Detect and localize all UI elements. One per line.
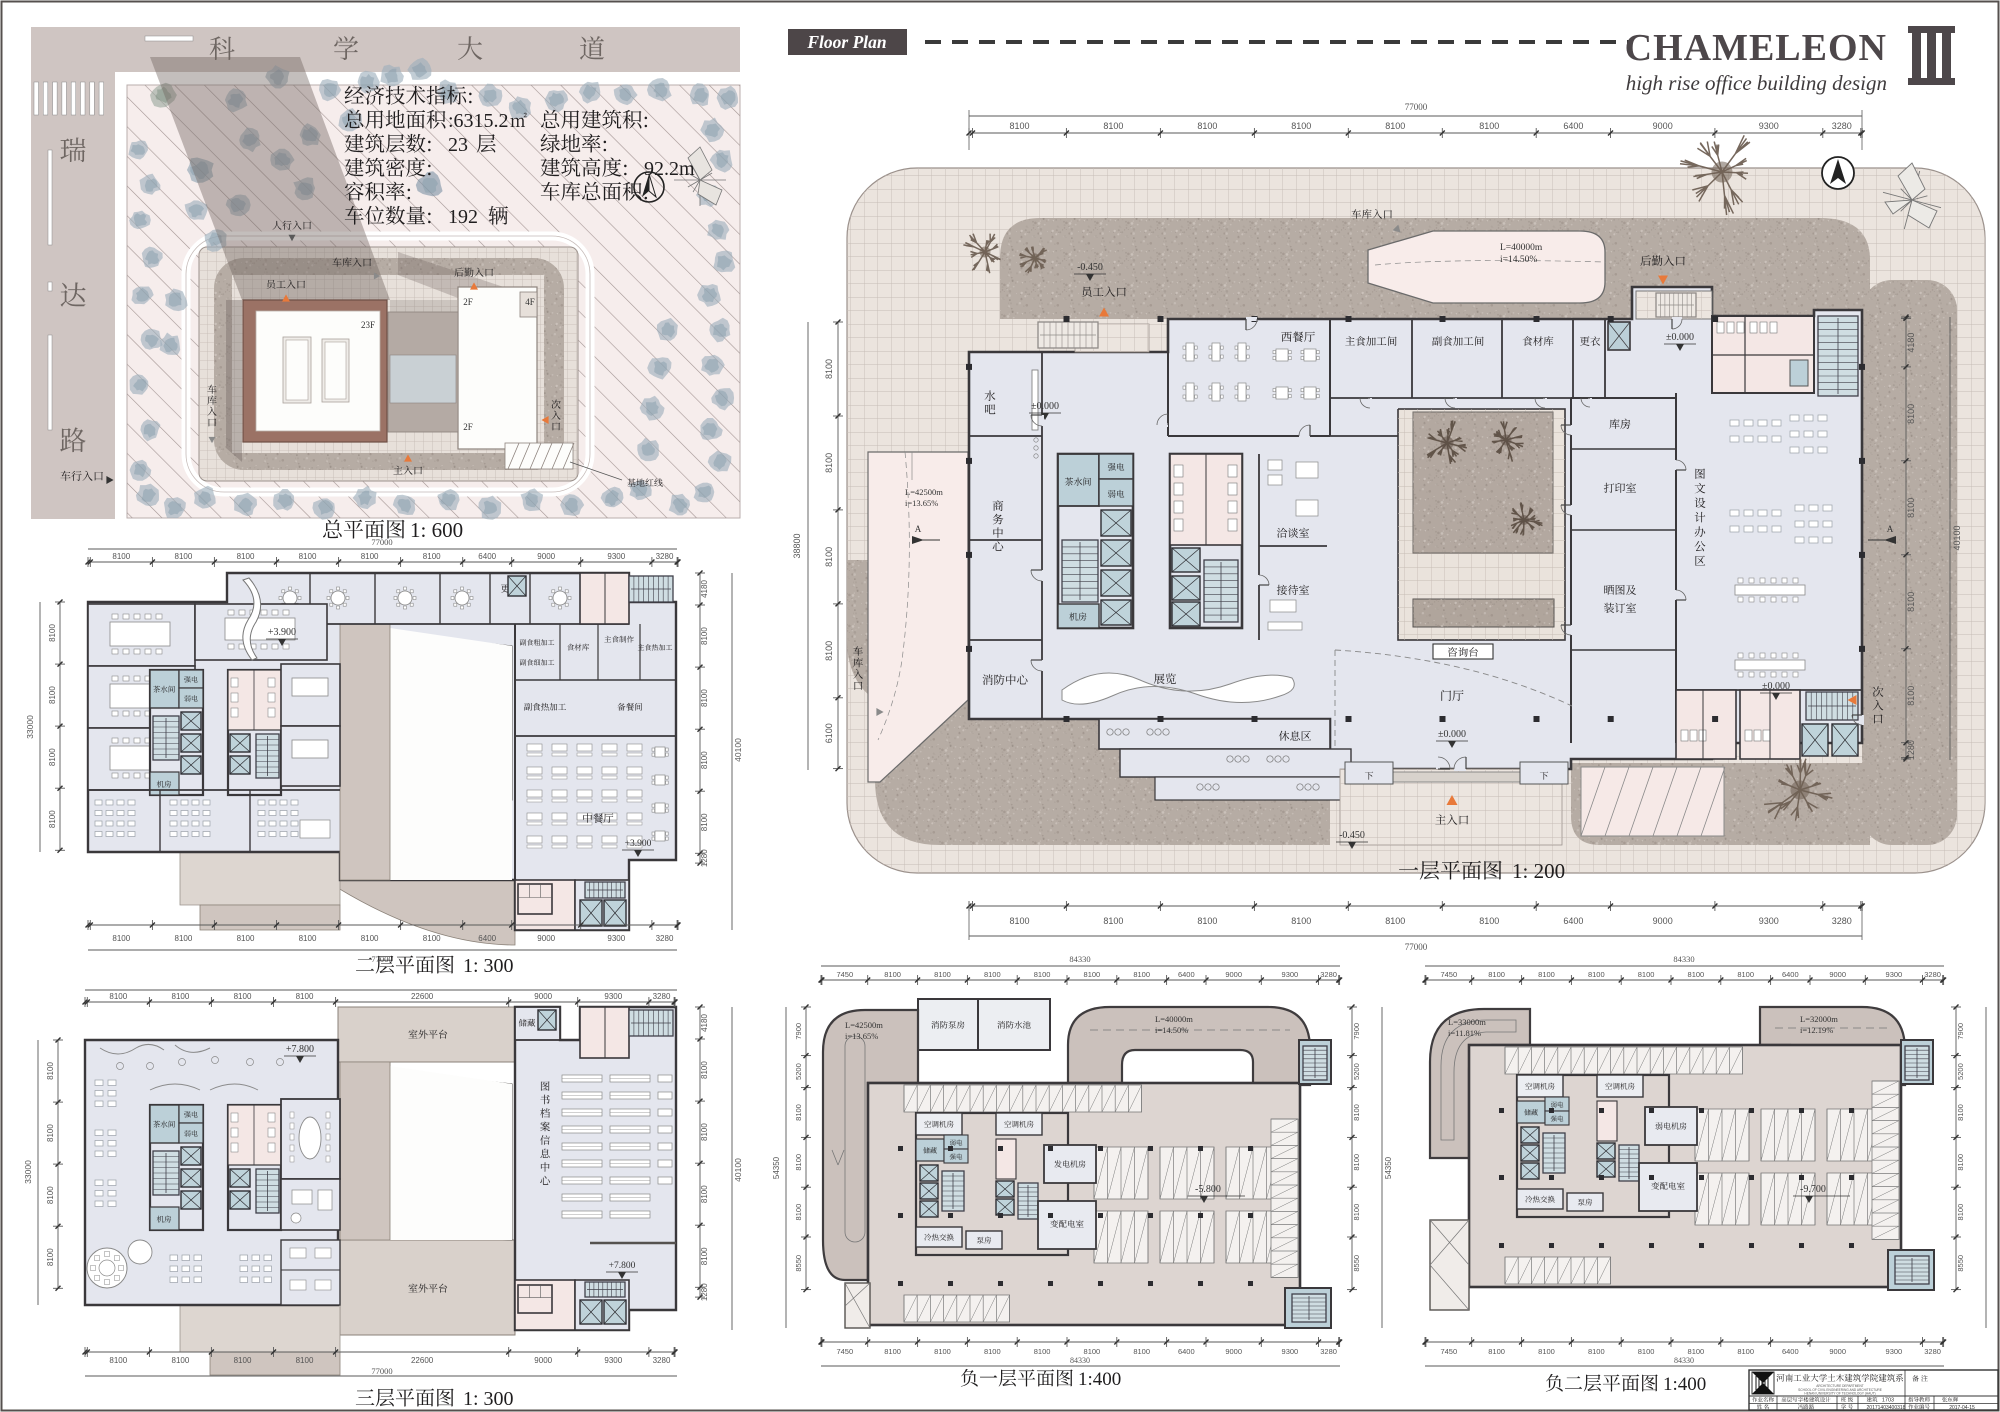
svg-text:8550: 8550	[1956, 1255, 1965, 1272]
svg-text:3280: 3280	[1832, 916, 1852, 926]
svg-text:9300: 9300	[1282, 970, 1299, 979]
svg-text:6400: 6400	[1563, 121, 1583, 131]
svg-text:8100: 8100	[46, 1186, 55, 1204]
svg-text:8100: 8100	[1688, 1347, 1705, 1356]
svg-text:8100: 8100	[984, 970, 1001, 979]
svg-text:8550: 8550	[794, 1255, 803, 1272]
svg-text:8100: 8100	[1956, 1104, 1965, 1121]
svg-text:2F: 2F	[463, 422, 473, 432]
svg-text:1703: 1703	[1882, 1398, 1894, 1404]
svg-text:8100: 8100	[1479, 916, 1499, 926]
svg-text:22600: 22600	[411, 992, 434, 1001]
svg-text:8100: 8100	[824, 359, 834, 379]
svg-text:8100: 8100	[172, 992, 190, 1001]
svg-text:8100: 8100	[700, 1185, 709, 1203]
svg-text:3280: 3280	[1832, 121, 1852, 131]
svg-text:3280: 3280	[1924, 1347, 1941, 1356]
svg-text:6400: 6400	[1178, 970, 1195, 979]
svg-text:8100: 8100	[175, 934, 193, 943]
svg-text:9000: 9000	[1653, 121, 1673, 131]
svg-text:84330: 84330	[1070, 1356, 1090, 1365]
svg-text:8100: 8100	[1588, 1347, 1605, 1356]
svg-text:8100: 8100	[824, 547, 834, 567]
svg-text:8100: 8100	[1956, 1154, 1965, 1171]
svg-text:192: 192	[448, 206, 478, 228]
svg-text:8100: 8100	[1906, 686, 1916, 706]
svg-text:8100: 8100	[175, 552, 193, 561]
svg-text:8100: 8100	[1291, 916, 1311, 926]
svg-text:7900: 7900	[1352, 1023, 1361, 1040]
svg-text:9300: 9300	[1886, 970, 1903, 979]
svg-text:20171403400318: 20171403400318	[1867, 1405, 1906, 1411]
svg-text:i=12.19%: i=12.19%	[1800, 1025, 1833, 1035]
svg-text:8100: 8100	[361, 552, 379, 561]
svg-text:33000: 33000	[25, 715, 35, 739]
svg-text:8100: 8100	[884, 970, 901, 979]
svg-text:7450: 7450	[1440, 1347, 1457, 1356]
svg-text:8100: 8100	[794, 1204, 803, 1221]
svg-text:8100: 8100	[1538, 1347, 1555, 1356]
svg-text:8100: 8100	[237, 552, 255, 561]
svg-text:8100: 8100	[1956, 1204, 1965, 1221]
svg-text:40100: 40100	[733, 738, 743, 762]
svg-text:±0.000: ±0.000	[1666, 332, 1694, 343]
svg-text:2F: 2F	[463, 297, 473, 307]
svg-text:9300: 9300	[604, 1356, 622, 1365]
svg-text:8100: 8100	[1638, 970, 1655, 979]
svg-text:i=14.50%: i=14.50%	[1155, 1025, 1188, 1035]
svg-text:8100: 8100	[824, 453, 834, 473]
svg-text:1280: 1280	[1906, 740, 1916, 760]
svg-text:8100: 8100	[794, 1154, 803, 1171]
svg-text:23: 23	[448, 134, 468, 156]
svg-text:-0.450: -0.450	[1339, 830, 1365, 841]
svg-text:9000: 9000	[1225, 970, 1242, 979]
svg-text:6400: 6400	[1178, 1347, 1195, 1356]
svg-text:8100: 8100	[48, 624, 57, 642]
svg-text:8100: 8100	[1688, 970, 1705, 979]
svg-text:±0.000: ±0.000	[1762, 681, 1790, 692]
svg-text:8100: 8100	[1352, 1204, 1361, 1221]
svg-text:40100: 40100	[733, 1158, 743, 1182]
svg-text:L=42500m: L=42500m	[905, 487, 943, 497]
svg-text:A: A	[1887, 524, 1894, 534]
svg-text:8100: 8100	[299, 934, 317, 943]
svg-text:8100: 8100	[1034, 970, 1051, 979]
svg-text:9000: 9000	[534, 992, 552, 1001]
svg-text:8100: 8100	[1084, 970, 1101, 979]
svg-text:22600: 22600	[411, 1356, 434, 1365]
svg-text:6400: 6400	[1563, 916, 1583, 926]
svg-text:-0.450: -0.450	[1077, 262, 1103, 273]
svg-text:8100: 8100	[1479, 121, 1499, 131]
svg-text:9000: 9000	[537, 934, 555, 943]
svg-text:77000: 77000	[371, 1366, 392, 1376]
svg-text:8100: 8100	[234, 1356, 252, 1365]
svg-text:8100: 8100	[1638, 1347, 1655, 1356]
svg-text:8100: 8100	[794, 1104, 803, 1121]
svg-text:L=33000m: L=33000m	[1448, 1017, 1486, 1027]
svg-text:9300: 9300	[1886, 1347, 1903, 1356]
svg-text:i=13.65%: i=13.65%	[905, 498, 938, 508]
svg-text:i=14.50%: i=14.50%	[1500, 255, 1537, 265]
svg-text:9300: 9300	[604, 992, 622, 1001]
svg-text:8100: 8100	[1385, 121, 1405, 131]
svg-text:77000: 77000	[1405, 942, 1428, 952]
svg-text:6400: 6400	[1782, 970, 1799, 979]
svg-text:i=11.81%: i=11.81%	[1448, 1028, 1481, 1038]
svg-text:33000: 33000	[23, 1160, 33, 1184]
svg-text:1: 300: 1: 300	[463, 1388, 514, 1410]
svg-text:3280: 3280	[656, 552, 674, 561]
svg-text:84330: 84330	[1069, 954, 1090, 964]
svg-text:7900: 7900	[794, 1023, 803, 1040]
svg-text:8100: 8100	[884, 1347, 901, 1356]
svg-text:i=13.65%: i=13.65%	[845, 1031, 878, 1041]
svg-text:9300: 9300	[1759, 121, 1779, 131]
svg-text:4180: 4180	[700, 1014, 709, 1032]
svg-text:1:400: 1:400	[1078, 1369, 1121, 1390]
svg-text:8100: 8100	[700, 1123, 709, 1141]
svg-text:Floor Plan: Floor Plan	[806, 32, 886, 52]
svg-text:8100: 8100	[109, 992, 127, 1001]
svg-text:1: 600: 1: 600	[410, 518, 463, 542]
svg-text:8100: 8100	[48, 686, 57, 704]
svg-text:8100: 8100	[700, 1247, 709, 1265]
svg-text:8100: 8100	[361, 934, 379, 943]
svg-text:+3.900: +3.900	[625, 839, 652, 849]
svg-text:8100: 8100	[1084, 1347, 1101, 1356]
svg-text:8100: 8100	[296, 992, 314, 1001]
svg-text:L=40000m: L=40000m	[1500, 243, 1543, 253]
svg-text:3280: 3280	[656, 934, 674, 943]
svg-text:3280: 3280	[653, 992, 671, 1001]
svg-text:8100: 8100	[1034, 1347, 1051, 1356]
svg-text:8100: 8100	[1906, 592, 1916, 612]
svg-text:8100: 8100	[1352, 1104, 1361, 1121]
svg-text:L=40000m: L=40000m	[1155, 1014, 1193, 1024]
svg-text:6100: 6100	[824, 723, 834, 743]
svg-text:8100: 8100	[934, 1347, 951, 1356]
svg-text:38800: 38800	[792, 533, 802, 558]
svg-text:1280: 1280	[700, 1283, 709, 1301]
svg-text:8100: 8100	[984, 1347, 1001, 1356]
svg-text:8550: 8550	[1352, 1255, 1361, 1272]
svg-text:8100: 8100	[700, 689, 709, 707]
svg-text:9000: 9000	[537, 552, 555, 561]
svg-text:8100: 8100	[1488, 970, 1505, 979]
svg-text:8100: 8100	[234, 992, 252, 1001]
svg-text:9000: 9000	[1225, 1347, 1242, 1356]
svg-text:CHAMELEON: CHAMELEON	[1625, 27, 1887, 69]
svg-text:4180: 4180	[700, 580, 709, 598]
svg-text:-9.700: -9.700	[1800, 1184, 1826, 1195]
svg-text:+7.800: +7.800	[286, 1044, 314, 1055]
svg-text:8100: 8100	[112, 934, 130, 943]
svg-text:8100: 8100	[700, 1061, 709, 1079]
svg-text:+7.800: +7.800	[609, 1261, 636, 1271]
svg-text:L=32000m: L=32000m	[1800, 1014, 1838, 1024]
svg-text:23F: 23F	[361, 320, 375, 330]
svg-text:9300: 9300	[607, 934, 625, 943]
svg-text:1: 200: 1: 200	[1512, 859, 1565, 883]
svg-text:8100: 8100	[1588, 970, 1605, 979]
svg-text:5200: 5200	[794, 1063, 803, 1080]
svg-text:7450: 7450	[836, 1347, 853, 1356]
svg-text:84330: 84330	[1673, 954, 1694, 964]
svg-text:high rise office building desi: high rise office building design	[1626, 71, 1887, 95]
svg-text:8100: 8100	[1009, 121, 1029, 131]
svg-text:9300: 9300	[1282, 1347, 1299, 1356]
svg-text:77000: 77000	[371, 954, 392, 964]
svg-text:1:400: 1:400	[1663, 1374, 1706, 1395]
svg-text:9300: 9300	[607, 552, 625, 561]
svg-text:8100: 8100	[700, 813, 709, 831]
svg-text:8100: 8100	[48, 810, 57, 828]
svg-text:8100: 8100	[299, 552, 317, 561]
svg-text:77000: 77000	[1405, 102, 1428, 112]
svg-text:9000: 9000	[1829, 970, 1846, 979]
svg-text:8100: 8100	[1385, 916, 1405, 926]
svg-text:54350: 54350	[1384, 1156, 1393, 1179]
svg-text:8100: 8100	[1009, 916, 1029, 926]
svg-text:HENAN UNIVERSITY OF TECHNOLOGY: HENAN UNIVERSITY OF TECHNOLOGY (HAUT)	[1804, 1392, 1875, 1396]
svg-text:6400: 6400	[1782, 1347, 1799, 1356]
svg-text:8100: 8100	[1352, 1154, 1361, 1171]
svg-text:8100: 8100	[237, 934, 255, 943]
svg-text:8100: 8100	[1488, 1347, 1505, 1356]
svg-text:5200: 5200	[1956, 1063, 1965, 1080]
svg-text:8100: 8100	[1197, 916, 1217, 926]
svg-text:8100: 8100	[1197, 121, 1217, 131]
svg-text:8100: 8100	[46, 1124, 55, 1142]
svg-text:8100: 8100	[1133, 1347, 1150, 1356]
svg-text:+3.900: +3.900	[268, 627, 296, 638]
svg-text:8100: 8100	[46, 1248, 55, 1266]
svg-text:±0.000: ±0.000	[1031, 401, 1059, 412]
svg-text:2017-04-15: 2017-04-15	[1949, 1405, 1975, 1411]
svg-text:1: 300: 1: 300	[463, 955, 514, 977]
svg-text:54350: 54350	[772, 1156, 781, 1179]
svg-text:±0.000: ±0.000	[1438, 729, 1466, 740]
svg-text:8100: 8100	[1103, 121, 1123, 131]
svg-text:9000: 9000	[1829, 1347, 1846, 1356]
svg-text:40100: 40100	[1952, 525, 1962, 550]
svg-text:1280: 1280	[700, 849, 709, 867]
svg-text:8100: 8100	[112, 552, 130, 561]
svg-text:3280: 3280	[1320, 1347, 1337, 1356]
svg-text:8100: 8100	[824, 641, 834, 661]
svg-text:4F: 4F	[525, 297, 535, 307]
svg-text:77000: 77000	[371, 537, 392, 547]
svg-text:8100: 8100	[1133, 970, 1150, 979]
svg-text:8100: 8100	[1906, 404, 1916, 424]
svg-text:8100: 8100	[296, 1356, 314, 1365]
svg-text:8100: 8100	[700, 627, 709, 645]
svg-text:84330: 84330	[1674, 1356, 1694, 1365]
svg-text:5200: 5200	[1352, 1063, 1361, 1080]
svg-text:A: A	[915, 524, 922, 534]
svg-text:6400: 6400	[478, 934, 496, 943]
svg-text:8100: 8100	[1737, 970, 1754, 979]
svg-text:92.2m: 92.2m	[644, 158, 695, 180]
svg-text:8100: 8100	[1103, 916, 1123, 926]
svg-text:8100: 8100	[172, 1356, 190, 1365]
svg-text:4180: 4180	[1906, 333, 1916, 353]
svg-text:8100: 8100	[423, 552, 441, 561]
svg-text:8100: 8100	[109, 1356, 127, 1365]
svg-text:3280: 3280	[1320, 970, 1337, 979]
svg-text:7900: 7900	[1956, 1023, 1965, 1040]
svg-text:8100: 8100	[1737, 1347, 1754, 1356]
svg-text:L=42500m: L=42500m	[845, 1020, 883, 1030]
svg-text:8100: 8100	[700, 751, 709, 769]
svg-text:6400: 6400	[478, 552, 496, 561]
svg-text:-5.800: -5.800	[1195, 1184, 1221, 1195]
svg-text:8100: 8100	[46, 1062, 55, 1080]
svg-text:7450: 7450	[1440, 970, 1457, 979]
svg-text:8100: 8100	[1906, 498, 1916, 518]
svg-text:8100: 8100	[934, 970, 951, 979]
svg-text:8100: 8100	[423, 934, 441, 943]
svg-text:9300: 9300	[1759, 916, 1779, 926]
svg-text:7450: 7450	[836, 970, 853, 979]
svg-text:8100: 8100	[48, 748, 57, 766]
svg-text:9000: 9000	[1653, 916, 1673, 926]
svg-text:3280: 3280	[653, 1356, 671, 1365]
svg-text:8100: 8100	[1291, 121, 1311, 131]
svg-text::6315.2: :6315.2	[448, 110, 509, 132]
svg-text:3280: 3280	[1924, 970, 1941, 979]
svg-text:8100: 8100	[1538, 970, 1555, 979]
svg-text:9000: 9000	[534, 1356, 552, 1365]
